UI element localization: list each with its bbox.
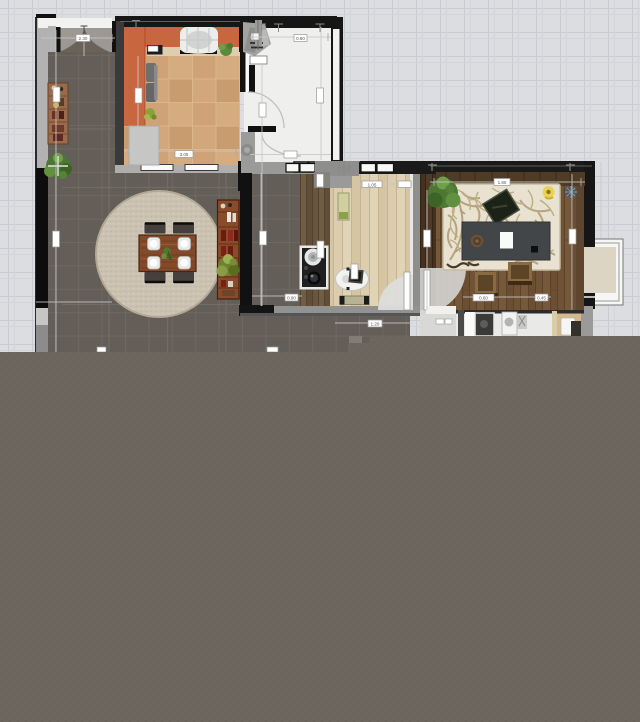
svg-text:1.80: 1.80: [498, 180, 507, 185]
svg-text:3.05: 3.05: [180, 152, 189, 157]
svg-text:0.60: 0.60: [479, 296, 488, 301]
svg-text:2.30: 2.30: [79, 36, 88, 41]
svg-text:1.20: 1.20: [371, 322, 380, 327]
svg-text:1.05: 1.05: [368, 182, 377, 187]
svg-text:0.90: 0.90: [287, 296, 296, 301]
svg-text:0.45: 0.45: [537, 296, 546, 301]
svg-text:0.80: 0.80: [296, 36, 305, 41]
